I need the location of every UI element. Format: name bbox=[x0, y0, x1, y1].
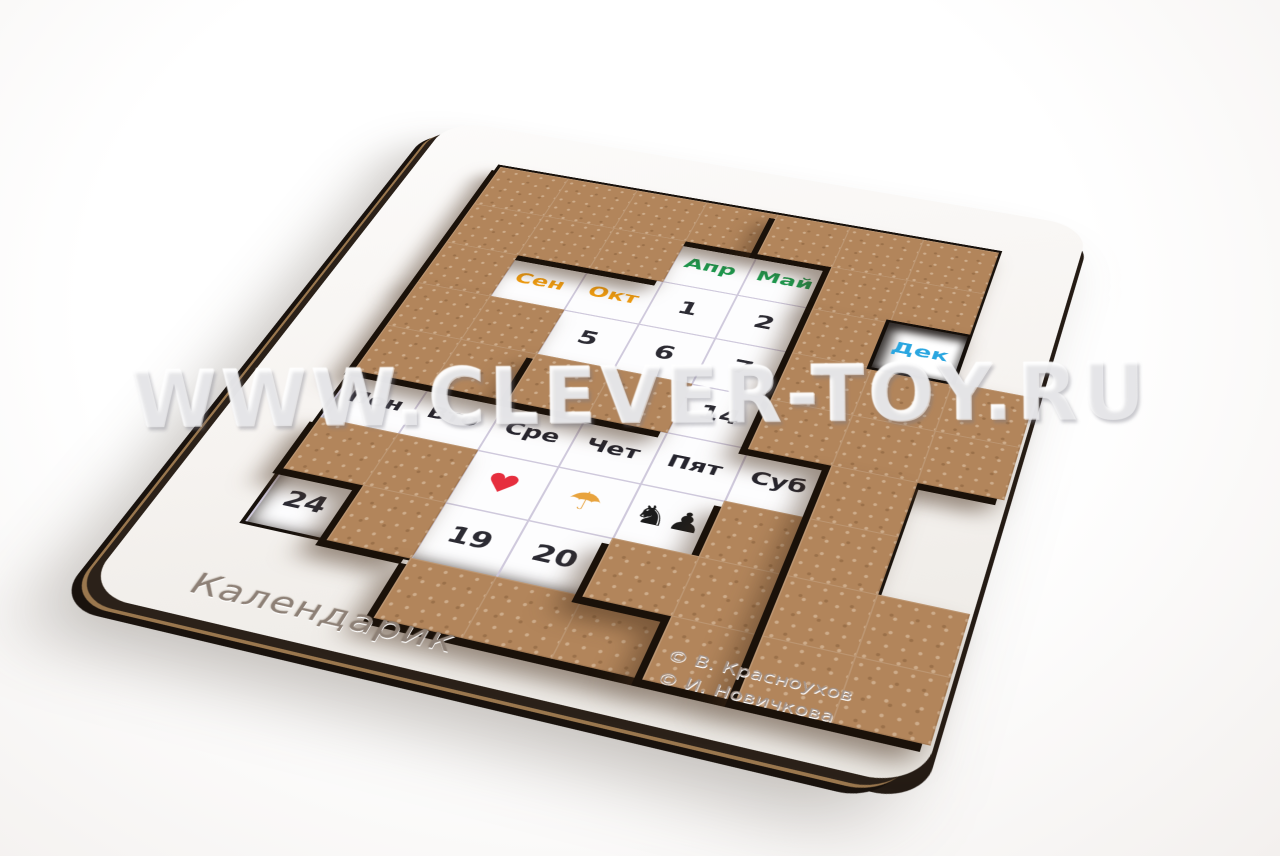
puzzle-board: АпрМайСенОкт1256714ПонВтоСреЧетПятСуб♥☂♞… bbox=[82, 120, 1090, 789]
puzzle-tray: АпрМайСенОкт1256714ПонВтоСреЧетПятСуб♥☂♞… bbox=[239, 165, 1002, 661]
product-photo: АпрМайСенОкт1256714ПонВтоСреЧетПятСуб♥☂♞… bbox=[0, 0, 1280, 856]
